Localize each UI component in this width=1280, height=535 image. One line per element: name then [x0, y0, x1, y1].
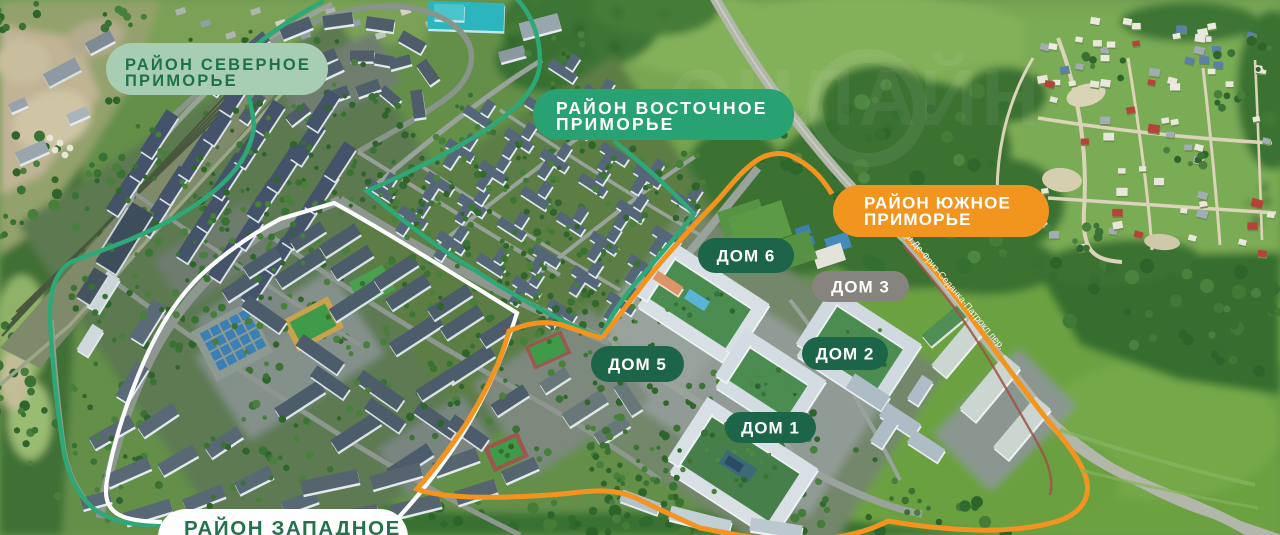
svg-text:РАЙОН ЗАПАДНОЕ: РАЙОН ЗАПАДНОЕ: [184, 516, 401, 535]
svg-text:ДОМ 5: ДОМ 5: [608, 355, 667, 374]
svg-text:ПРИМОРЬЕ: ПРИМОРЬЕ: [864, 210, 972, 229]
svg-text:ПРИМОРЬЕ: ПРИМОРЬЕ: [125, 72, 238, 90]
svg-text:ДОМ 3: ДОМ 3: [831, 277, 890, 296]
svg-text:ДОМ 2: ДОМ 2: [816, 344, 875, 363]
svg-text:ПРИМОРЬЕ: ПРИМОРЬЕ: [556, 114, 675, 134]
svg-text:ДОМ 1: ДОМ 1: [741, 418, 800, 437]
svg-text:ДОМ 6: ДОМ 6: [717, 246, 776, 265]
